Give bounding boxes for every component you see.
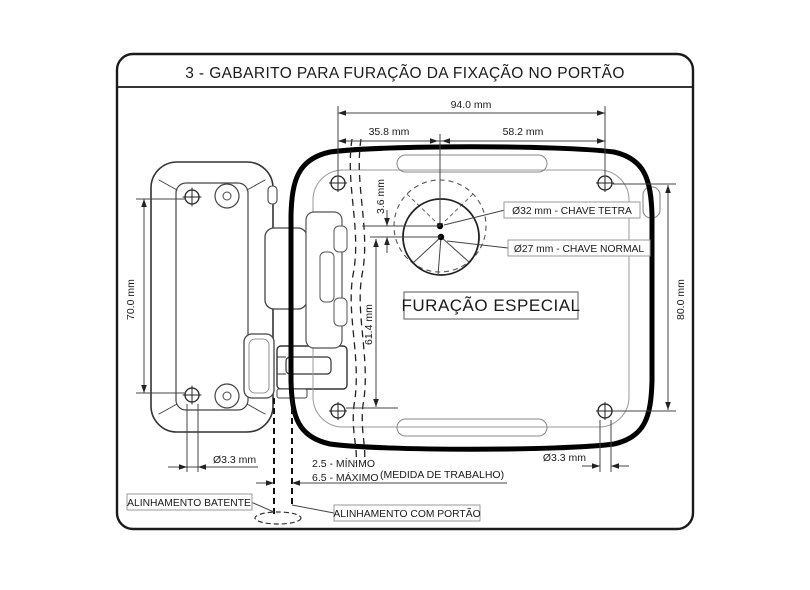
lock-cam-top	[215, 184, 239, 208]
dim-top-right-span: 58.2 mm	[503, 126, 544, 138]
dim-hole-diameter-right: Ø3.3 mm	[543, 452, 586, 464]
dim-top-left-span: 35.8 mm	[369, 126, 410, 138]
key-normal-label: Ø27 mm - CHAVE NORMAL	[514, 244, 645, 255]
lock-cam-bottom	[215, 384, 239, 408]
dim-key-offset: 3.6 mm	[375, 179, 387, 214]
drawing-page: 3 - GABARITO PARA FURAÇÃO DA FIXAÇÃO NO …	[0, 0, 810, 590]
gap-min-label: 2.5 - MÍNIMO	[312, 457, 375, 470]
striker-plate	[306, 212, 347, 348]
dim-top-total: 94.0 mm	[451, 99, 492, 111]
dim-key-to-bottom-hole: 61.4 mm	[363, 304, 375, 345]
key-tetra-label: Ø32 mm - CHAVE TETRA	[512, 206, 632, 217]
special-drilling-label: FURAÇÃO ESPECIAL	[402, 296, 581, 315]
gate-drilling-template-diagram: 3 - GABARITO PARA FURAÇÃO DA FIXAÇÃO NO …	[0, 0, 810, 590]
gap-max-label: 6.5 - MÁXIMO	[312, 471, 379, 484]
dim-hole-diameter-left: Ø3.3 mm	[213, 454, 256, 466]
dim-lock-hole-spacing: 70.0 mm	[125, 279, 137, 320]
dim-plate-hole-spacing: 80.0 mm	[675, 279, 687, 320]
alignment-gate-label: ALINHAMENTO COM PORTÃO	[333, 507, 480, 520]
work-measure-label: (MEDIDA DE TRABALHO)	[380, 469, 504, 481]
drawing-title: 3 - GABARITO PARA FURAÇÃO DA FIXAÇÃO NO …	[185, 65, 625, 82]
alignment-stop-label: ALINHAMENTO BATENTE	[127, 498, 251, 509]
